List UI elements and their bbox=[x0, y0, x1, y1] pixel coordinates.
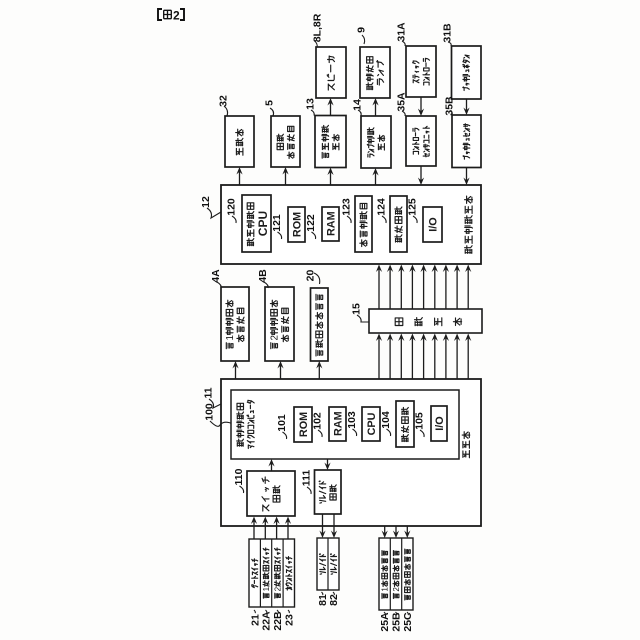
svg-text:11: 11 bbox=[202, 387, 214, 398]
svg-text:ROM: ROM bbox=[291, 212, 303, 237]
svg-text:15: 15 bbox=[350, 303, 362, 315]
svg-text:2: 2 bbox=[392, 587, 401, 592]
svg-text:120: 120 bbox=[225, 198, 237, 216]
svg-text:21: 21 bbox=[249, 614, 261, 626]
svg-text:111: 111 bbox=[300, 470, 312, 487]
svg-text:1: 1 bbox=[262, 586, 271, 591]
svg-text:35A: 35A bbox=[395, 92, 407, 112]
svg-text:CPU: CPU bbox=[256, 211, 270, 236]
svg-text:124: 124 bbox=[375, 198, 387, 216]
svg-text:31A: 31A bbox=[395, 22, 407, 42]
svg-text:104: 104 bbox=[380, 411, 392, 429]
svg-text:1: 1 bbox=[225, 335, 236, 341]
svg-text:125: 125 bbox=[406, 198, 418, 216]
svg-text:123: 123 bbox=[340, 198, 352, 216]
svg-text:35B: 35B bbox=[443, 96, 455, 116]
svg-text:22B: 22B bbox=[272, 611, 284, 631]
svg-text:101: 101 bbox=[276, 414, 288, 432]
svg-text:121: 121 bbox=[271, 214, 283, 232]
svg-text:82: 82 bbox=[328, 594, 340, 606]
svg-text:20: 20 bbox=[304, 270, 316, 282]
svg-text:31B: 31B bbox=[441, 23, 453, 43]
svg-text:105: 105 bbox=[413, 412, 425, 430]
svg-text:4B: 4B bbox=[257, 269, 269, 283]
svg-text:81: 81 bbox=[317, 594, 329, 606]
svg-text:14: 14 bbox=[351, 99, 363, 111]
svg-text:32: 32 bbox=[217, 95, 229, 107]
svg-text:122: 122 bbox=[305, 214, 317, 232]
svg-text:2: 2 bbox=[173, 9, 180, 23]
svg-text:102: 102 bbox=[311, 412, 323, 430]
svg-text:RAM: RAM bbox=[325, 211, 337, 236]
svg-text:RAM: RAM bbox=[332, 411, 344, 436]
svg-text:100: 100 bbox=[203, 403, 215, 421]
svg-text:22A: 22A bbox=[261, 611, 273, 631]
svg-text:4A: 4A bbox=[210, 269, 222, 283]
svg-text:2: 2 bbox=[270, 335, 281, 341]
svg-text:1: 1 bbox=[381, 587, 390, 592]
svg-text:I/O: I/O bbox=[427, 217, 439, 231]
svg-text:9: 9 bbox=[355, 27, 367, 33]
svg-text:103: 103 bbox=[346, 411, 358, 429]
svg-text:2: 2 bbox=[273, 586, 282, 591]
svg-text:CPU: CPU bbox=[366, 412, 378, 435]
svg-text:8L,8R: 8L,8R bbox=[311, 13, 323, 42]
svg-text:5: 5 bbox=[263, 100, 275, 106]
svg-text:ROM: ROM bbox=[298, 412, 310, 437]
svg-text:13: 13 bbox=[304, 98, 316, 110]
svg-text:110: 110 bbox=[233, 468, 245, 485]
svg-text:23: 23 bbox=[283, 614, 295, 626]
svg-text:12: 12 bbox=[200, 196, 212, 208]
svg-text:I/O: I/O bbox=[434, 416, 446, 430]
